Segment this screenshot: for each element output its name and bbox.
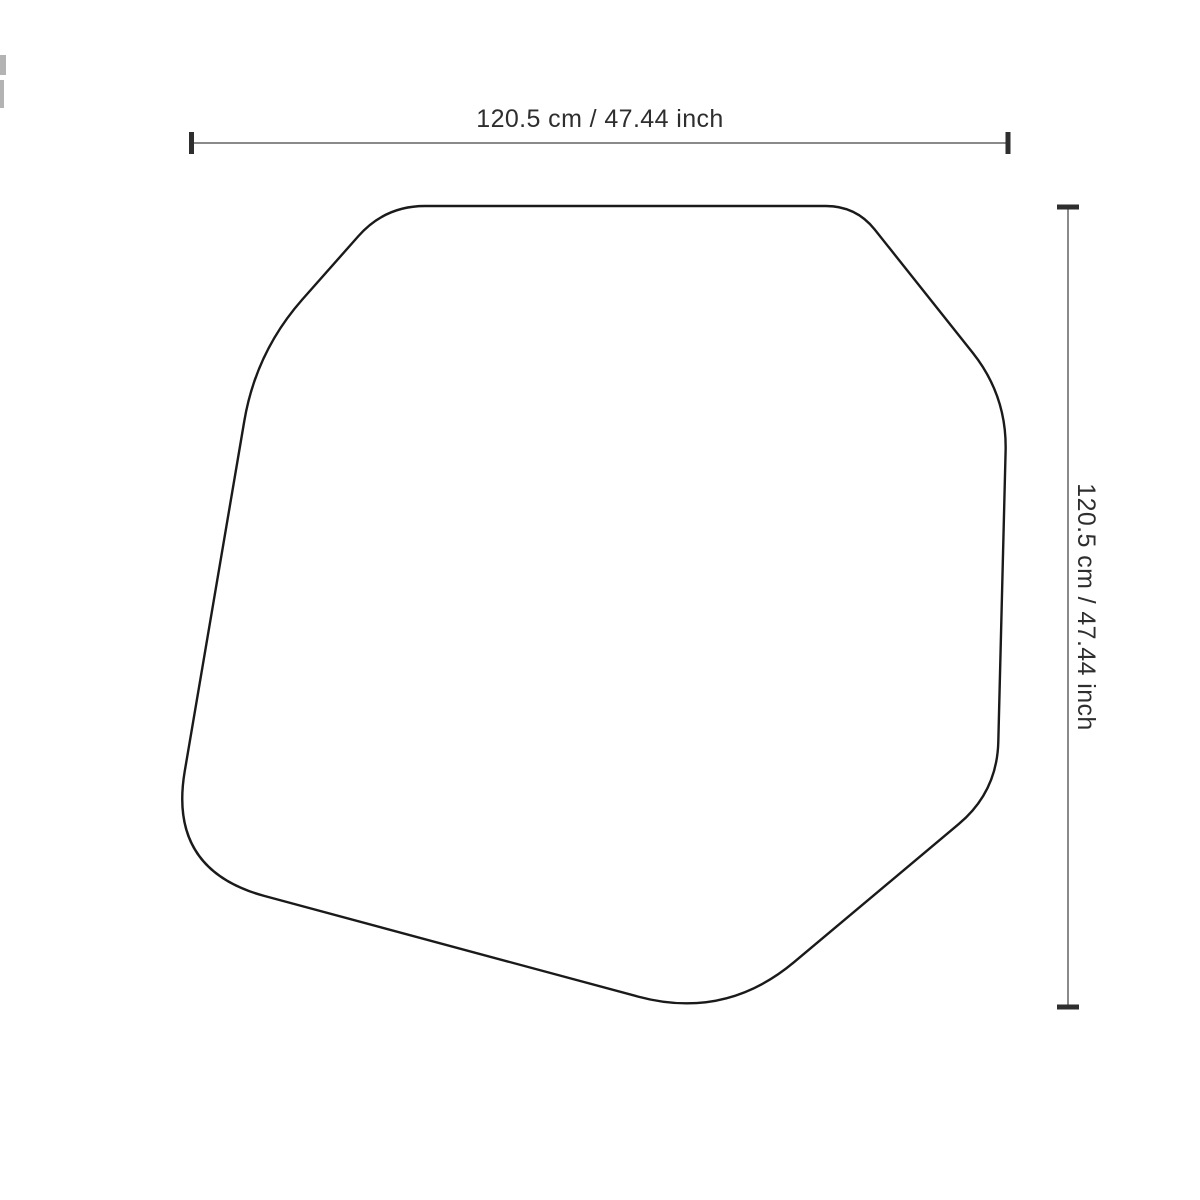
vertical-dimension-bottom-tick — [1057, 1005, 1079, 1010]
edge-artifact-mark — [0, 55, 6, 75]
horizontal-dimension-right-tick — [1006, 132, 1011, 154]
dimension-diagram: 120.5 cm / 47.44 inch 120.5 cm / 47.44 i… — [0, 0, 1200, 1200]
diagram-canvas — [0, 0, 1200, 1200]
vertical-dimension-label: 120.5 cm / 47.44 inch — [1071, 483, 1101, 730]
edge-artifact-mark — [0, 80, 4, 108]
horizontal-dimension-left-tick — [189, 132, 194, 154]
vertical-dimension-top-tick — [1057, 205, 1079, 210]
horizontal-dimension-label: 120.5 cm / 47.44 inch — [476, 104, 723, 134]
tabletop-outline-shape — [182, 206, 1005, 1003]
